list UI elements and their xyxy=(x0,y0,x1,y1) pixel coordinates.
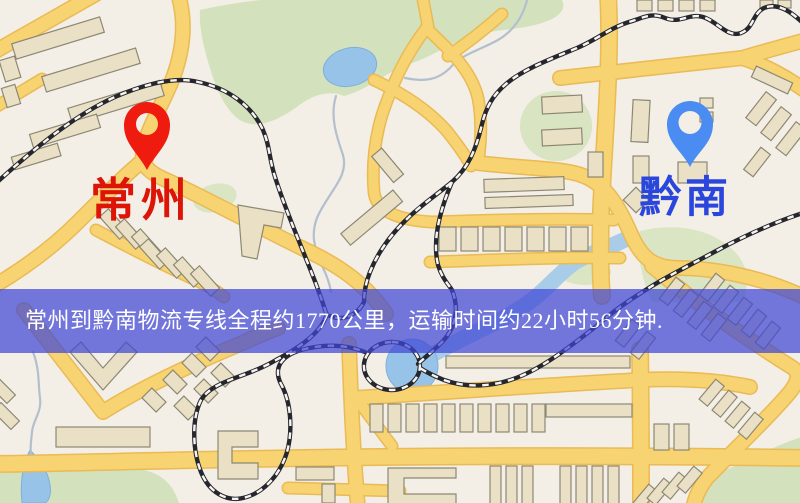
route-info-text: 常州到黔南物流专线全程约1770公里，运输时间约22小时56分钟. xyxy=(25,289,663,353)
map-canvas[interactable] xyxy=(0,0,800,503)
route-info-banner: 常州到黔南物流专线全程约1770公里，运输时间约22小时56分钟. xyxy=(0,289,800,353)
destination-city-label: 黔南 xyxy=(639,177,731,220)
origin-city-label: 常州 xyxy=(90,178,192,224)
map-screenshot: 常州 黔南 常州到黔南物流专线全程约1770公里，运输时间约22小时56分钟. xyxy=(0,0,800,503)
